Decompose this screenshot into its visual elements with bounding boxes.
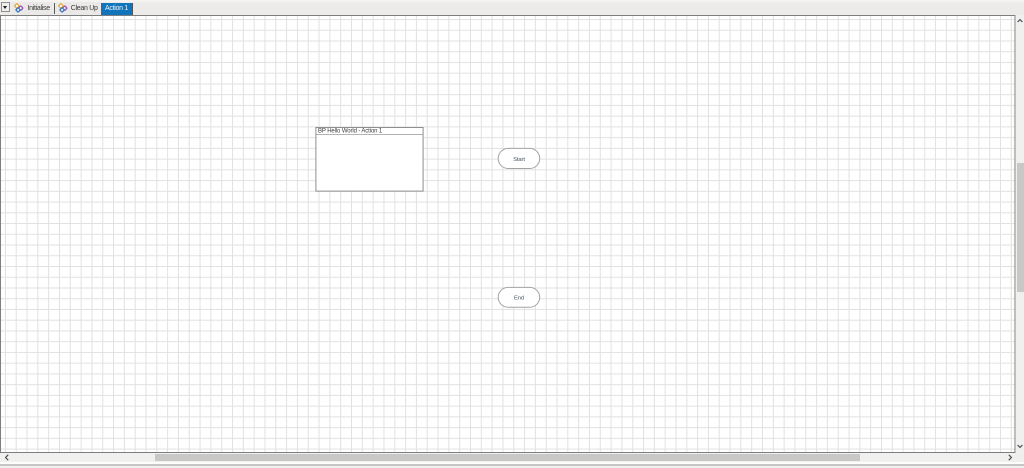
svg-text:Start: Start <box>513 157 525 163</box>
svg-text:End: End <box>514 296 524 302</box>
svg-text:BP Hello World - Action 1: BP Hello World - Action 1 <box>318 129 383 135</box>
